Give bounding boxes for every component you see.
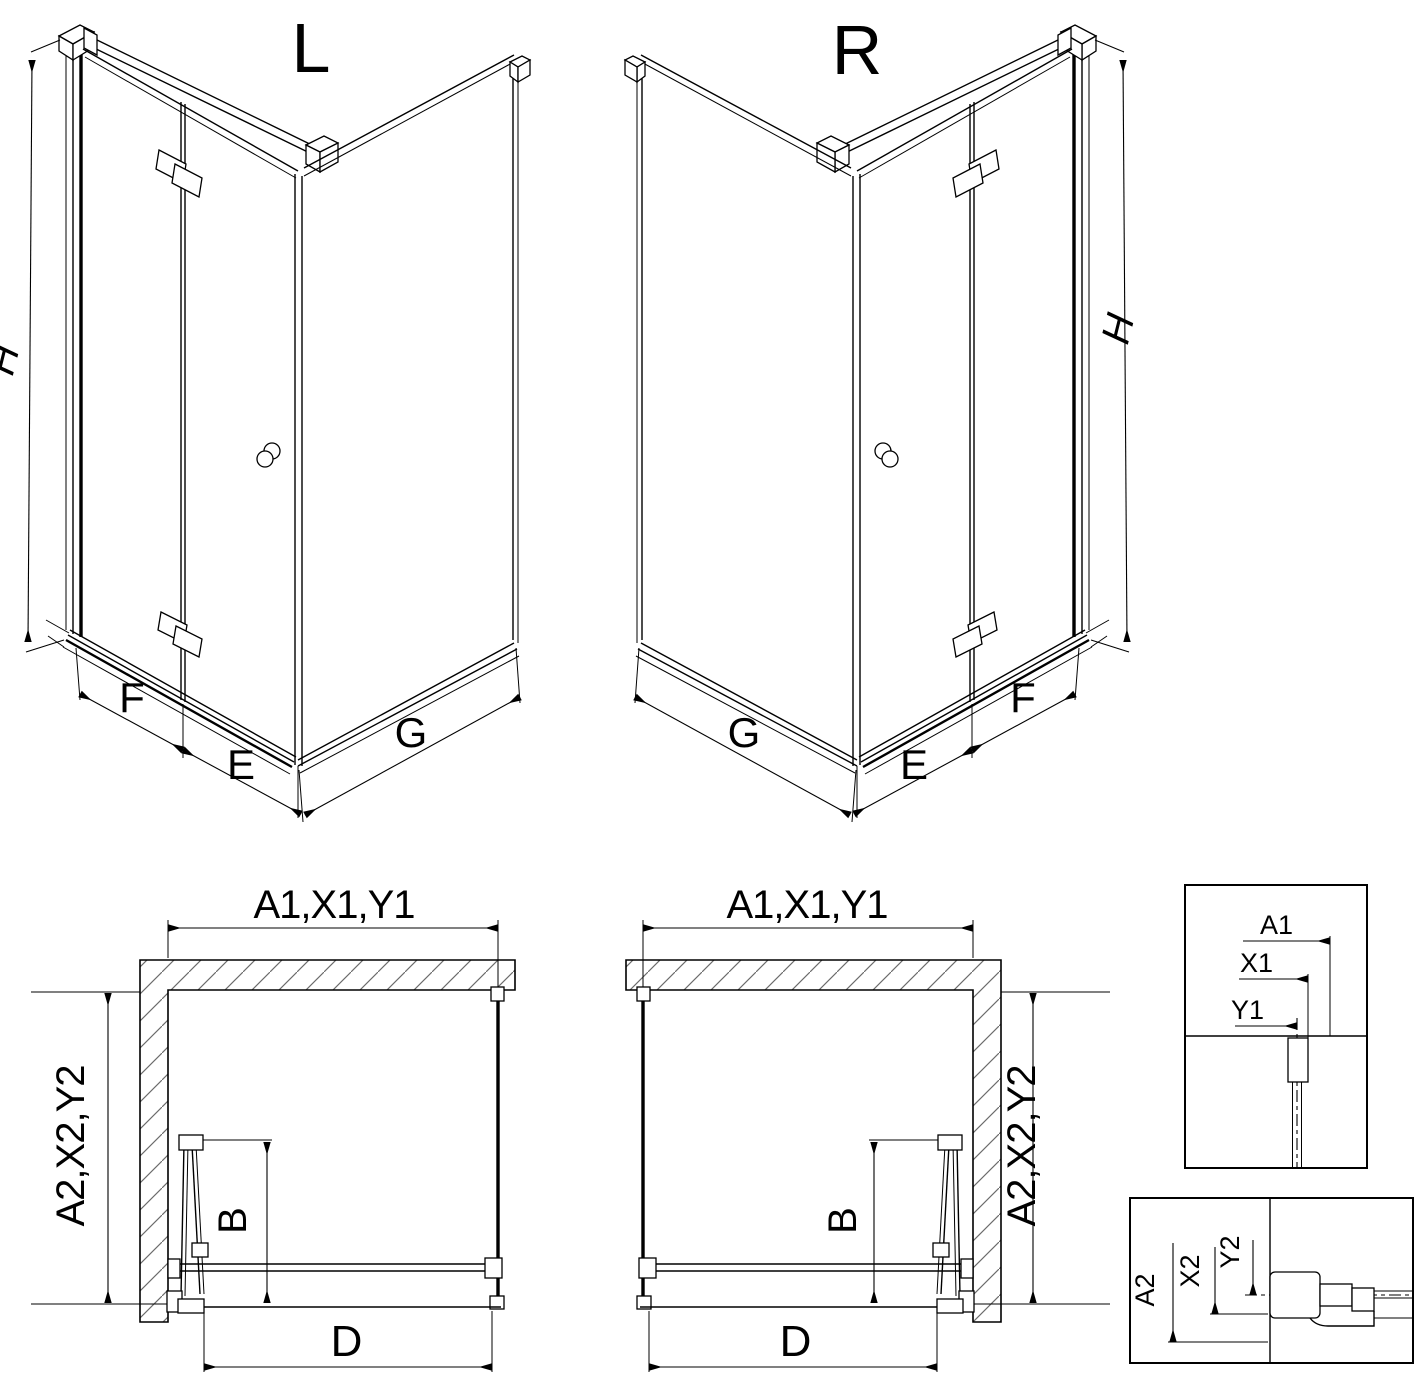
plan-fold-depth-label-right: B [821, 1208, 865, 1234]
plan-width-label-left: A1,X1,Y1 [253, 883, 414, 927]
plan-width-label-right: A1,X1,Y1 [726, 883, 887, 927]
variant-label-left: L [292, 9, 331, 87]
detail-bottom-dim-x2: X2 [1175, 1254, 1205, 1287]
drawing-page: L H F E G R H F E G A1,X1,Y1 A2,X2,Y2 B … [0, 0, 1426, 1397]
left-iso-view: L H F E G [0, 9, 530, 822]
plan-depth-label-right: A2,X2,Y2 [1000, 1065, 1044, 1226]
detail-top-dim-a1: A1 [1260, 910, 1293, 940]
detail-top-dim-x1: X1 [1240, 948, 1273, 978]
dim-label-height-right: H [1094, 309, 1144, 348]
technical-drawing: L H F E G R H F E G A1,X1,Y1 A2,X2,Y2 B … [0, 0, 1426, 1397]
dim-label-door-left: E [227, 741, 255, 788]
detail-box-bottom: A2 X2 Y2 [1130, 1198, 1413, 1363]
detail-bottom-dim-a2: A2 [1130, 1273, 1160, 1306]
dim-label-front-panel-left: F [119, 674, 145, 721]
plan-depth-label-left: A2,X2,Y2 [49, 1065, 93, 1226]
dim-label-door-right: E [900, 741, 928, 788]
detail-bottom-dim-y2: Y2 [1215, 1235, 1245, 1268]
dim-label-side-right: G [728, 709, 761, 756]
left-plan-view: A1,X1,Y1 A2,X2,Y2 B D [31, 883, 515, 1372]
dim-label-height-left: H [0, 340, 28, 379]
variant-label-right: R [832, 11, 883, 89]
detail-box-top: A1 X1 Y1 [1185, 885, 1367, 1168]
dim-label-front-panel-right: F [1010, 674, 1036, 721]
dim-label-side-left: G [395, 709, 428, 756]
right-iso-view: R H F E G [625, 11, 1143, 822]
right-plan-view: A1,X1,Y1 A2,X2,Y2 B D [626, 883, 1110, 1372]
detail-top-dim-y1: Y1 [1231, 995, 1264, 1025]
plan-opening-label-right: D [780, 1317, 811, 1366]
plan-fold-depth-label-left: B [211, 1208, 255, 1234]
plan-opening-label-left: D [331, 1317, 362, 1366]
